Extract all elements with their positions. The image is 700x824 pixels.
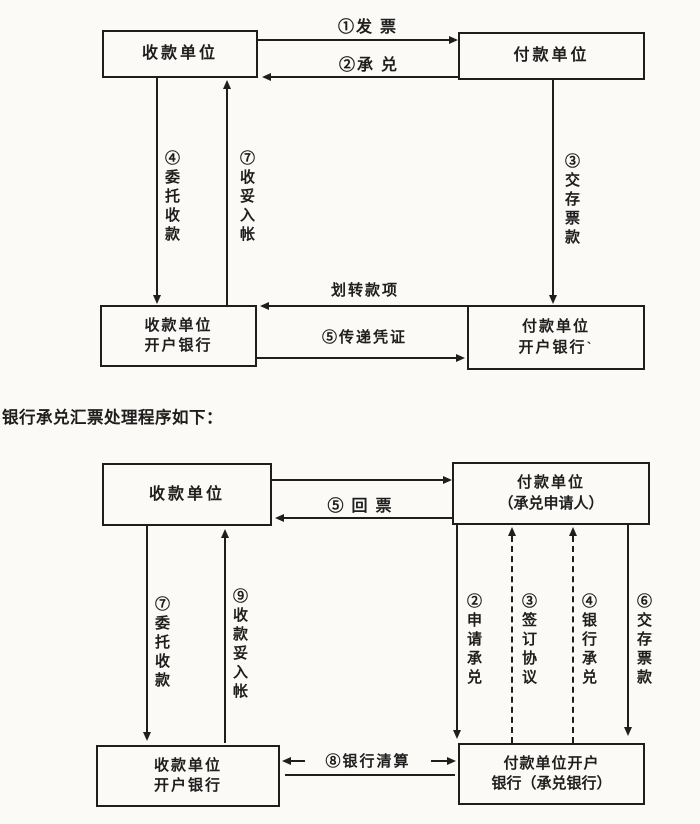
- d2-entrust-arrow-line: [146, 526, 148, 732]
- d1-payee-bank-box: 收款单位 开户银行: [100, 305, 257, 367]
- d2-bank-accept-label: ④银行承兑: [580, 593, 595, 688]
- d1-payer-bank-line2: 开户银行`: [519, 338, 594, 358]
- d1-transfer-arrowhead: [260, 302, 269, 310]
- d1-transfer-label: 划转款项: [305, 279, 425, 300]
- d1-deposit-label: ③交存票款: [563, 153, 578, 248]
- d2-payer-box: 付款单位 （承兑申请人）: [452, 462, 650, 525]
- d2-clearing-label: ⑧银行清算: [305, 750, 431, 771]
- d1-voucher-arrowhead: [456, 354, 465, 362]
- d1-payer-label: 付款单位: [513, 45, 589, 67]
- d2-clearing-arrowhead-right: [447, 757, 456, 765]
- d2-return-bill-arrow-line: [284, 517, 452, 519]
- d2-payee-bank-line1: 收款单位: [154, 756, 222, 776]
- d1-accept-arrowhead: [262, 73, 271, 81]
- d2-clearing-arrowhead-left: [282, 757, 291, 765]
- scanned-flowchart-page: 收款单位 付款单位 ①发 票 ②承 兑 ④委托收款 ⑦收妥入帐 ③交存票款 划转…: [0, 0, 700, 824]
- d2-collect-credit-label: ⑨收款妥入帐: [231, 588, 246, 702]
- d2-sign-agreement-arrowhead: [508, 527, 516, 536]
- d1-credit-arrow-line: [226, 89, 228, 305]
- d1-payer-bank-line1: 付款单位: [522, 317, 590, 337]
- d2-payer-bank-box: 付款单位开户 银行（承兑银行）: [458, 743, 645, 805]
- d1-entrust-label: ④委托收款: [163, 150, 178, 245]
- d1-voucher-label: ⑤传递凭证: [302, 326, 427, 347]
- d2-top-arrowhead: [443, 476, 452, 484]
- d2-apply-accept-arrow-line: [456, 525, 458, 730]
- d2-payee-bank-box: 收款单位 开户银行: [96, 745, 280, 807]
- d1-invoice-arrow-line: [258, 39, 449, 41]
- d2-payee-bank-line2: 开户银行: [154, 776, 222, 796]
- d2-deposit-arrow-line: [627, 525, 629, 727]
- d2-sign-agreement-label: ③签订协议: [520, 593, 535, 688]
- d1-payer-box: 付款单位: [458, 32, 645, 80]
- d2-entrust-arrowhead: [143, 732, 151, 741]
- d2-payer-line1: 付款单位: [517, 473, 585, 493]
- d2-payer-bank-line1: 付款单位开户: [503, 754, 599, 774]
- d1-invoice-label: ①发 票: [308, 13, 428, 37]
- d2-deposit-arrowhead: [624, 727, 632, 736]
- d2-collect-credit-arrow-line: [224, 538, 226, 743]
- d2-top-arrow-line: [272, 479, 443, 481]
- d1-deposit-arrow-line: [552, 80, 554, 295]
- d2-bank-accept-arrow-line: [572, 536, 574, 743]
- d1-transfer-arrow-line: [269, 305, 467, 307]
- d1-payee-label: 收款单位: [142, 43, 218, 65]
- d2-return-bill-arrowhead: [275, 514, 284, 522]
- d2-payer-bank-line2: 银行（承兑银行）: [491, 774, 611, 794]
- d2-bank-accept-arrowhead: [569, 527, 577, 536]
- d1-entrust-arrowhead: [153, 295, 161, 304]
- d1-voucher-arrow-line: [257, 357, 456, 359]
- d1-payee-bank-line2: 开户银行: [144, 336, 212, 356]
- d1-credit-label: ⑦收妥入帐: [238, 150, 253, 245]
- d2-apply-accept-label: ②申请承兑: [465, 593, 480, 688]
- d2-collect-credit-arrowhead: [221, 529, 229, 538]
- d1-credit-arrowhead: [223, 80, 231, 89]
- d2-payee-label: 收款单位: [149, 484, 225, 506]
- d2-deposit-label: ⑥交存票款: [635, 593, 650, 688]
- d1-accept-arrow-line: [271, 76, 458, 78]
- d1-accept-label: ②承 兑: [309, 51, 429, 75]
- d1-payee-bank-line1: 收款单位: [144, 316, 212, 336]
- d2-apply-accept-arrowhead: [453, 730, 461, 739]
- d2-payer-line2: （承兑申请人）: [498, 494, 603, 514]
- d1-entrust-arrow-line: [156, 78, 158, 295]
- d1-deposit-arrowhead: [549, 295, 557, 304]
- d2-entrust-label: ⑦委托收款: [153, 596, 168, 691]
- d2-payee-box: 收款单位: [102, 463, 272, 526]
- d2-return-bill-label: ⑤ 回 票: [298, 492, 423, 516]
- d2-clearing-lower-line: [285, 774, 455, 776]
- section-heading: 银行承兑汇票处理程序如下：: [2, 404, 223, 428]
- d1-invoice-arrowhead: [449, 36, 458, 44]
- d1-payer-bank-box: 付款单位 开户银行`: [467, 305, 645, 370]
- d1-payee-box: 收款单位: [102, 30, 258, 78]
- d2-sign-agreement-arrow-line: [511, 536, 513, 743]
